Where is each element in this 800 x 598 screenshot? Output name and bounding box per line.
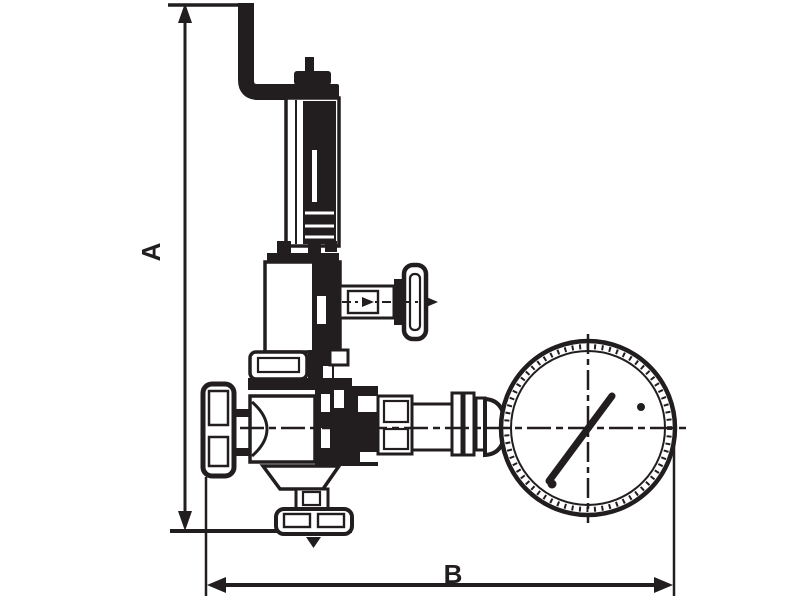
- pilot-tip-arrow-icon: [424, 296, 438, 308]
- gauge-needle-tail-dot: [548, 480, 557, 489]
- upper-bonnet: [265, 262, 340, 352]
- outlet-skirt: [263, 466, 339, 489]
- spring-cap: [287, 57, 339, 99]
- outlet-assembly: [263, 466, 352, 548]
- handwheel: [203, 384, 252, 476]
- cap-plate-upper: [294, 71, 331, 85]
- dimension-b-label: B: [444, 559, 463, 589]
- gauge-dial-dot: [637, 403, 645, 411]
- dimension-a-label: A: [136, 242, 166, 261]
- valve-body: [250, 386, 380, 466]
- spring-housing-core: [303, 101, 336, 244]
- technical-drawing-canvas: A B: [0, 0, 800, 598]
- gauge-branch-connection: [378, 393, 516, 455]
- dimension-b-arrow-left-icon: [207, 577, 226, 593]
- spring-housing: [286, 98, 339, 246]
- valve-technical-drawing: A B: [0, 0, 800, 598]
- relief-lever-arm: [246, 3, 297, 92]
- pilot-adjustment-valve: [340, 265, 438, 339]
- dimension-b-arrow-right-icon: [654, 577, 673, 593]
- dimension-a-arrow-down-icon: [178, 511, 192, 531]
- mid-flange-assembly: [248, 350, 352, 390]
- flow-down-arrow-icon: [306, 537, 321, 548]
